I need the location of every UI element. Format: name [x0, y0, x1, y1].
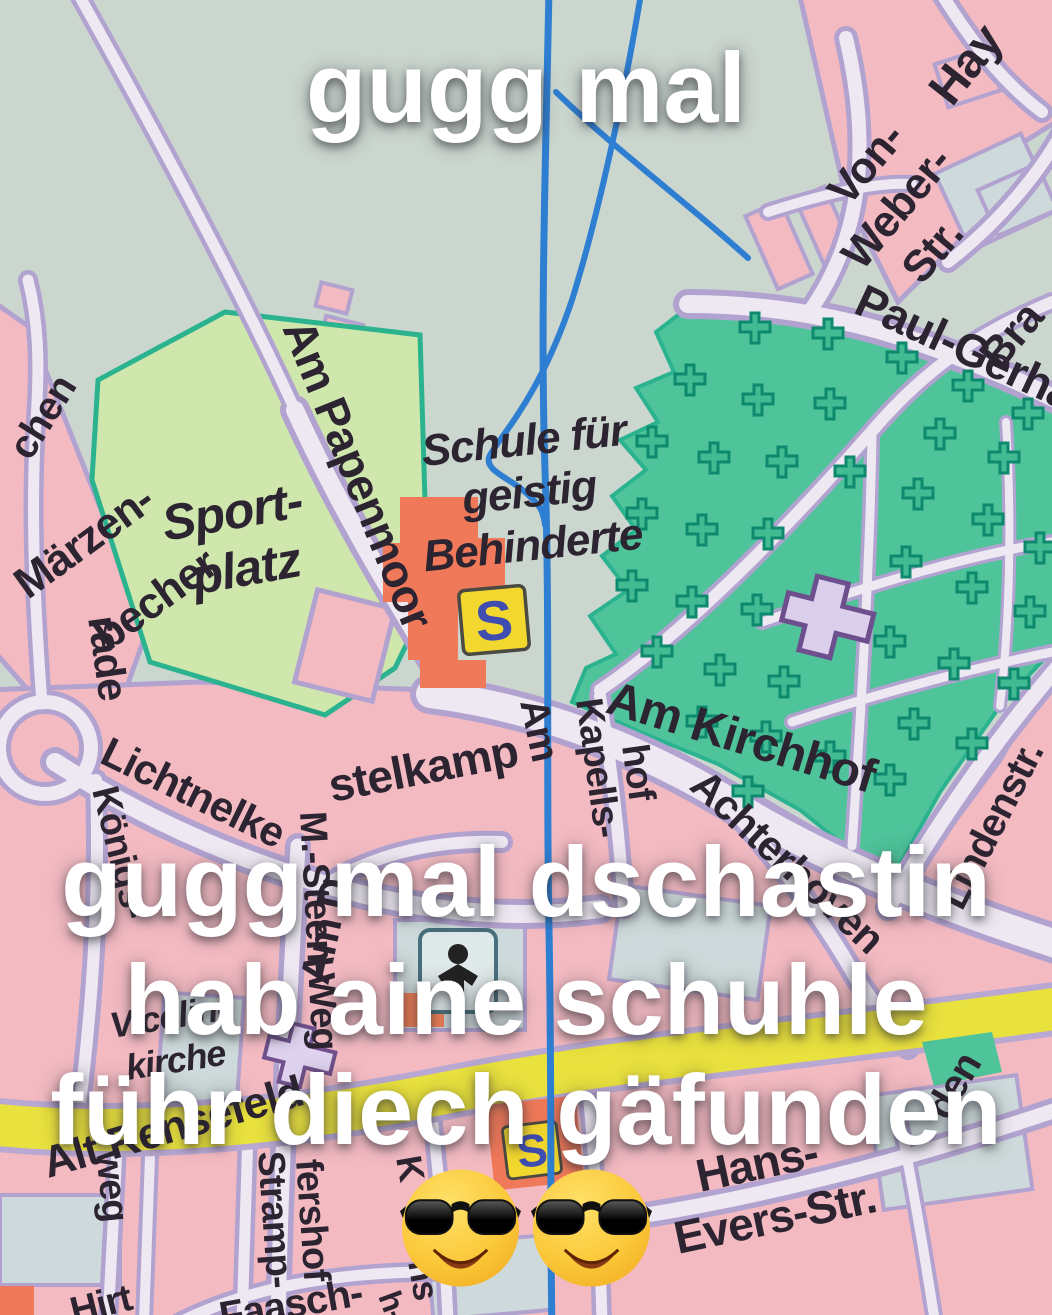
- sunglasses-emoji: [531, 1169, 652, 1286]
- school-sign: S: [458, 585, 529, 655]
- sunglasses-emoji: [400, 1169, 521, 1286]
- caption-line-1: gugg mal dschastin: [0, 830, 1052, 934]
- emoji-row: [0, 1164, 1052, 1292]
- school-sign-letter: S: [473, 587, 516, 653]
- meme-image: S S chen Märzen- becher rade Lichtnelke …: [0, 0, 1052, 1315]
- caption-line-2: hab aine schuhle: [0, 948, 1052, 1052]
- sunglasses-emoji-pair: [396, 1164, 656, 1292]
- caption-line-3: führ diech gäfunden: [0, 1058, 1052, 1162]
- street-label-am-kapellshof-3: hof: [613, 741, 663, 804]
- caption-top: gugg mal: [0, 36, 1052, 140]
